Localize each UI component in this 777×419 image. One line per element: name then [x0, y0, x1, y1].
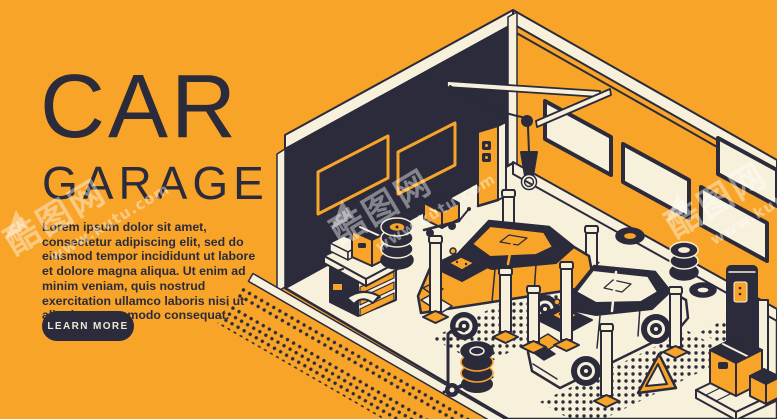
learn-more-button[interactable]: LEARN MORE	[42, 311, 134, 341]
tire-stack-left	[381, 218, 413, 269]
wheel	[450, 312, 478, 340]
banner: CAR GARAGE Lorem ipsum dolor sit amet, c…	[0, 0, 777, 419]
cardboard-box-small	[750, 369, 777, 404]
side-mirror	[554, 299, 560, 305]
wheel	[641, 314, 671, 344]
page-title: CAR	[40, 62, 239, 152]
page-subtitle: GARAGE	[42, 160, 269, 206]
intro-paragraph: Lorem ipsum dolor sit amet, consectetur …	[42, 220, 256, 323]
side-mirror	[450, 248, 456, 254]
wheel	[571, 356, 601, 386]
crane-trolley	[521, 115, 533, 127]
